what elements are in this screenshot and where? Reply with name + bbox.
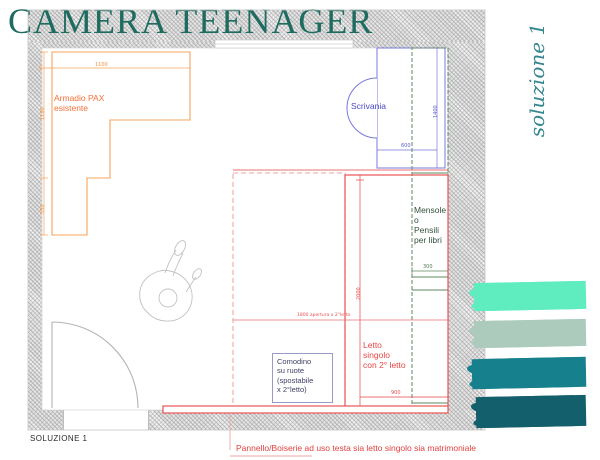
scrivania-dim-length: 1400	[434, 105, 439, 118]
solution-label: SOLUZIONE 1	[30, 434, 87, 443]
mensole-label: Mensole o Pensili per libri	[414, 205, 446, 245]
mensole-dim-depth: 300	[423, 265, 433, 270]
design-board: CAMERA TEENAGER	[0, 0, 600, 460]
letto-dim-length: 2000	[357, 287, 362, 300]
door-opening	[63, 410, 149, 430]
solution-script-note: soluzione 1	[525, 5, 565, 155]
comodino-note: Comodino su ruote (spostabile x 2°letto)	[272, 353, 333, 403]
letto-dim-width: 900	[391, 391, 401, 396]
palette-swatch-mint	[474, 281, 587, 311]
palette-swatch-teal	[472, 357, 587, 389]
armadio-dim-top: 1100	[95, 63, 108, 68]
palette-swatch-darkteal	[476, 395, 587, 428]
wall-left	[28, 42, 42, 430]
armadio-dim-left-upper: 1100	[41, 107, 46, 120]
letto-label: Letto singolo con 2° letto	[363, 340, 406, 370]
palette-swatch-sage	[474, 319, 587, 348]
pannello-caption: Pannello/Boiserie ad uso testa sia letto…	[236, 443, 486, 453]
scrivania-dim-depth: 600	[401, 144, 411, 149]
armadio-label: Armadio PAX esistente	[54, 93, 104, 113]
letto-dim-opening: 1800 apertura x 2°letto	[297, 314, 350, 319]
scrivania-label: Scrivania	[351, 101, 386, 111]
page-title: CAMERA TEENAGER	[8, 0, 373, 42]
armadio-dim-left-lower: 550	[41, 204, 46, 214]
